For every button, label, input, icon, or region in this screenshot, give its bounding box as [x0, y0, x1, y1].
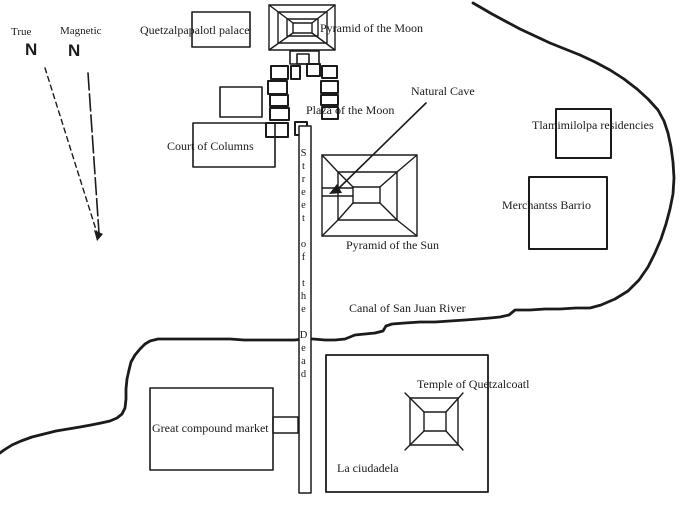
plaza-structure: [270, 95, 288, 106]
natural-cave-label: Natural Cave: [411, 85, 475, 98]
tlamimilolpa-label: Tlamimilolpa residencies: [532, 119, 654, 132]
plaza-structure: [266, 123, 288, 137]
plaza-structure: [268, 81, 287, 94]
la-ciudadela-label: La ciudadela: [337, 462, 399, 475]
canal-label: Canal of San Juan River: [349, 302, 466, 315]
tlamimilolpa-building: [556, 109, 611, 158]
true-north-line: [45, 68, 98, 236]
plaza-structure: [270, 108, 289, 120]
plaza-structure: [322, 66, 337, 78]
pyramid-of-the-sun-label: Pyramid of the Sun: [346, 239, 439, 252]
temple-of-quetzalcoatl-pyramid: [405, 393, 463, 450]
pyramid-of-the-moon-label: Pyramid of the Moon: [320, 22, 423, 35]
plaza-structure: [291, 66, 300, 79]
street-of-the-dead-label: Street of the Dead: [297, 148, 309, 368]
mid-building: [220, 87, 262, 117]
merchants-barrio-label: Merchantss Barrio: [502, 199, 591, 212]
plaza-of-the-moon-label: Plaza of the Moon: [306, 104, 394, 117]
temple-of-quetzalcoatl-label: Temple of Quetzalcoatl: [417, 378, 529, 391]
true-north-n: N: [25, 41, 37, 58]
court-of-columns-label: Court of Columns: [167, 140, 254, 153]
teotihuacan-site-map: True Magnetic N N Quetzalpapalotl palace…: [0, 0, 683, 512]
compass-rose: [45, 68, 103, 241]
plaza-structure: [307, 64, 320, 76]
palace-label: Quetzalpapalotl palace: [140, 24, 250, 37]
market-street-connector: [273, 417, 298, 433]
magnetic-north-label: Magnetic: [60, 25, 102, 38]
pyramid-of-the-sun: [322, 155, 417, 236]
magnetic-north-n: N: [68, 42, 80, 59]
plaza-structure: [321, 81, 338, 93]
plaza-structure: [271, 66, 288, 79]
moon-pyramid-platform: [290, 51, 319, 64]
cave-arrowhead: [329, 184, 342, 194]
great-compound-market-label: Great compound market: [152, 422, 269, 435]
true-north-label: True: [11, 26, 31, 39]
map-line-art: [0, 0, 683, 512]
merchants-barrio-building: [529, 177, 607, 249]
